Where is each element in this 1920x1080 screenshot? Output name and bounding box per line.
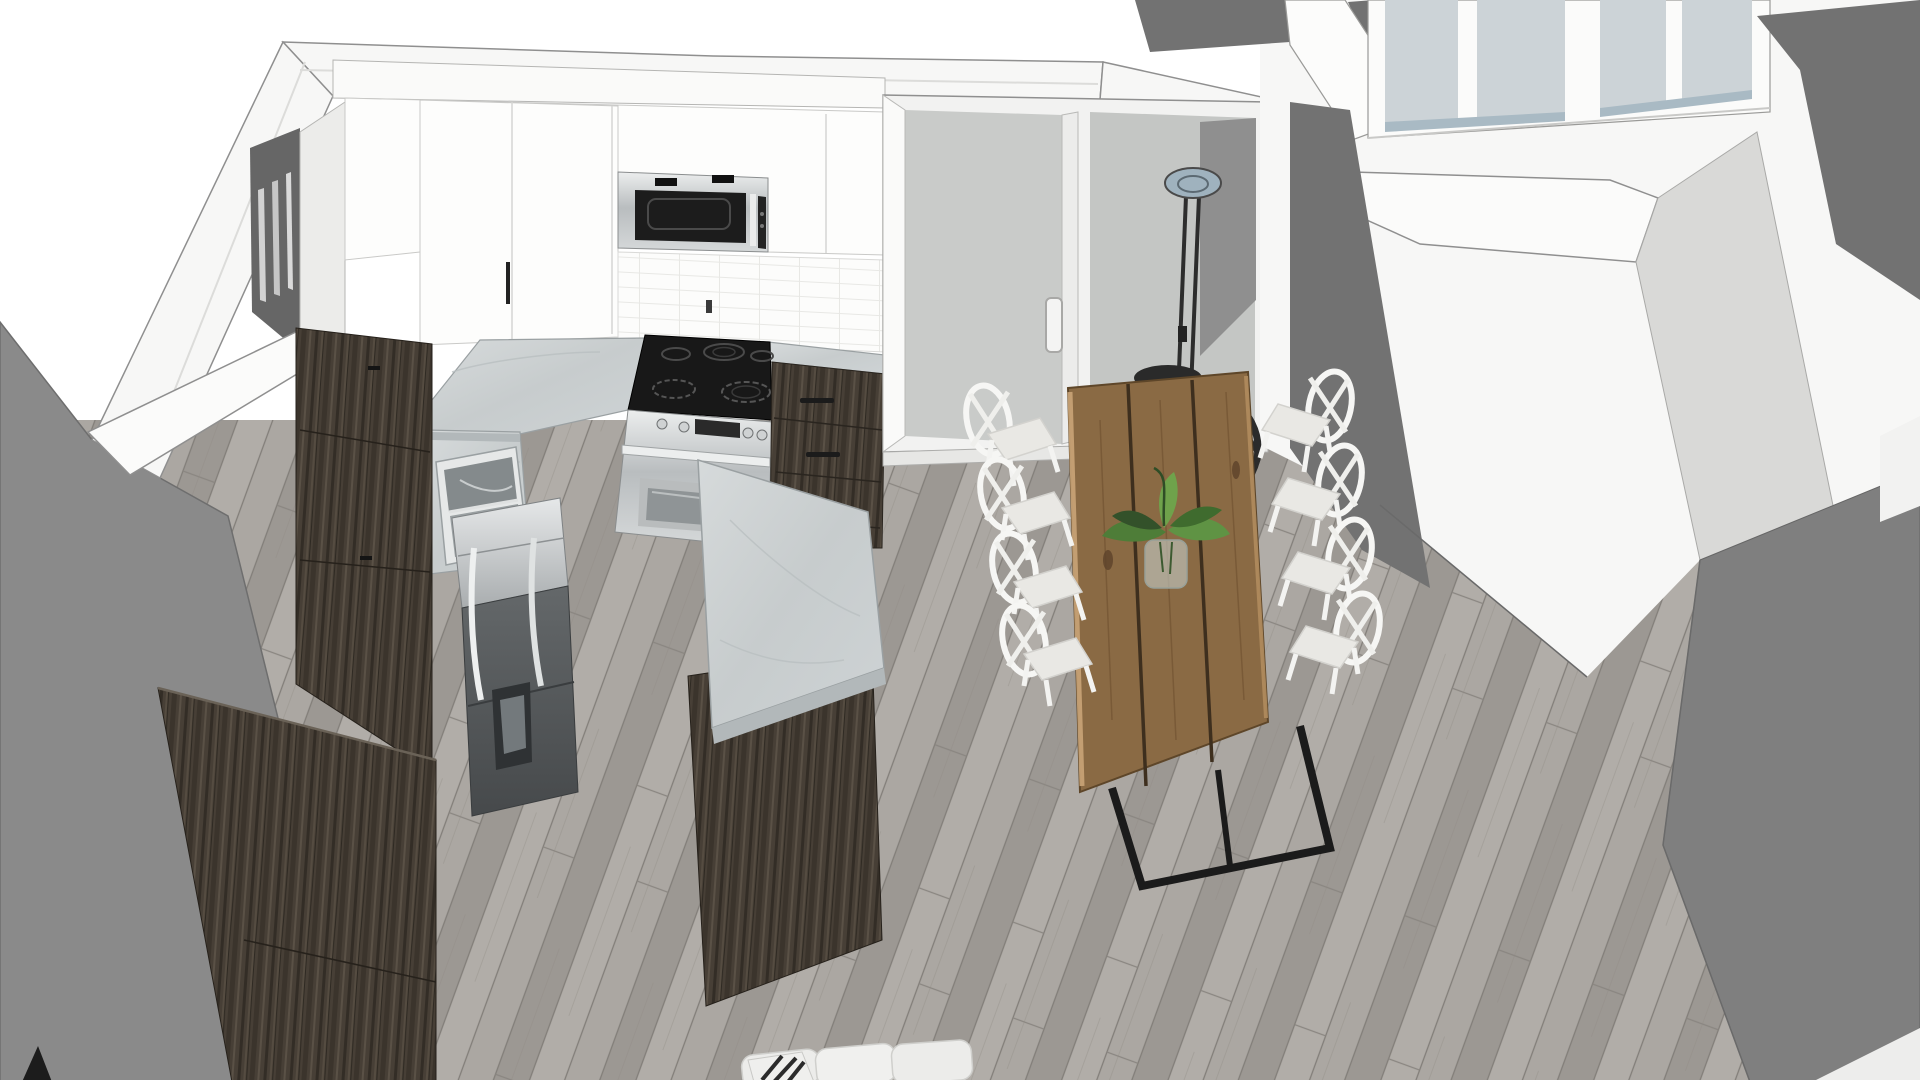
mount-bracket: [655, 178, 677, 186]
door-glass-front: [905, 110, 1062, 444]
oven-knob: [743, 428, 753, 438]
microwave: Over-the-range stainless microwave: [618, 172, 768, 252]
microwave-handle: [750, 194, 756, 246]
cabinet-handle: [506, 262, 510, 304]
render-viewport: Gray hardwood plank floor Left exterior …: [0, 0, 1920, 1080]
window-glass: [1385, 0, 1458, 130]
refrigerator: French-door refrigerator: [452, 498, 578, 816]
oven-knob: [757, 430, 767, 440]
kitchen-island: Kitchen island with marble top: [688, 460, 886, 1006]
pantry-handle: [368, 366, 380, 370]
ceiling-canopy: [1165, 168, 1221, 198]
window-glass: [1477, 0, 1565, 122]
pantry-handle: [360, 556, 372, 560]
window-glass: [1600, 0, 1666, 113]
drawer-handle: [800, 398, 834, 403]
microwave-controls: [758, 196, 766, 249]
cooktop: Black glass cooktop with burners: [628, 335, 773, 420]
door-handle: [1046, 298, 1062, 352]
window-glass: [1682, 0, 1752, 103]
power-outlet: [706, 300, 712, 313]
drawer-handle: [806, 452, 840, 457]
mount-bracket: [712, 175, 734, 183]
tall-cabinet-doors: [420, 100, 618, 345]
scene-3d-render: Gray hardwood plank floor Left exterior …: [0, 0, 1920, 1080]
oven-knob: [657, 419, 667, 429]
oven-knob: [679, 422, 689, 432]
glass-vase: [1145, 540, 1187, 588]
